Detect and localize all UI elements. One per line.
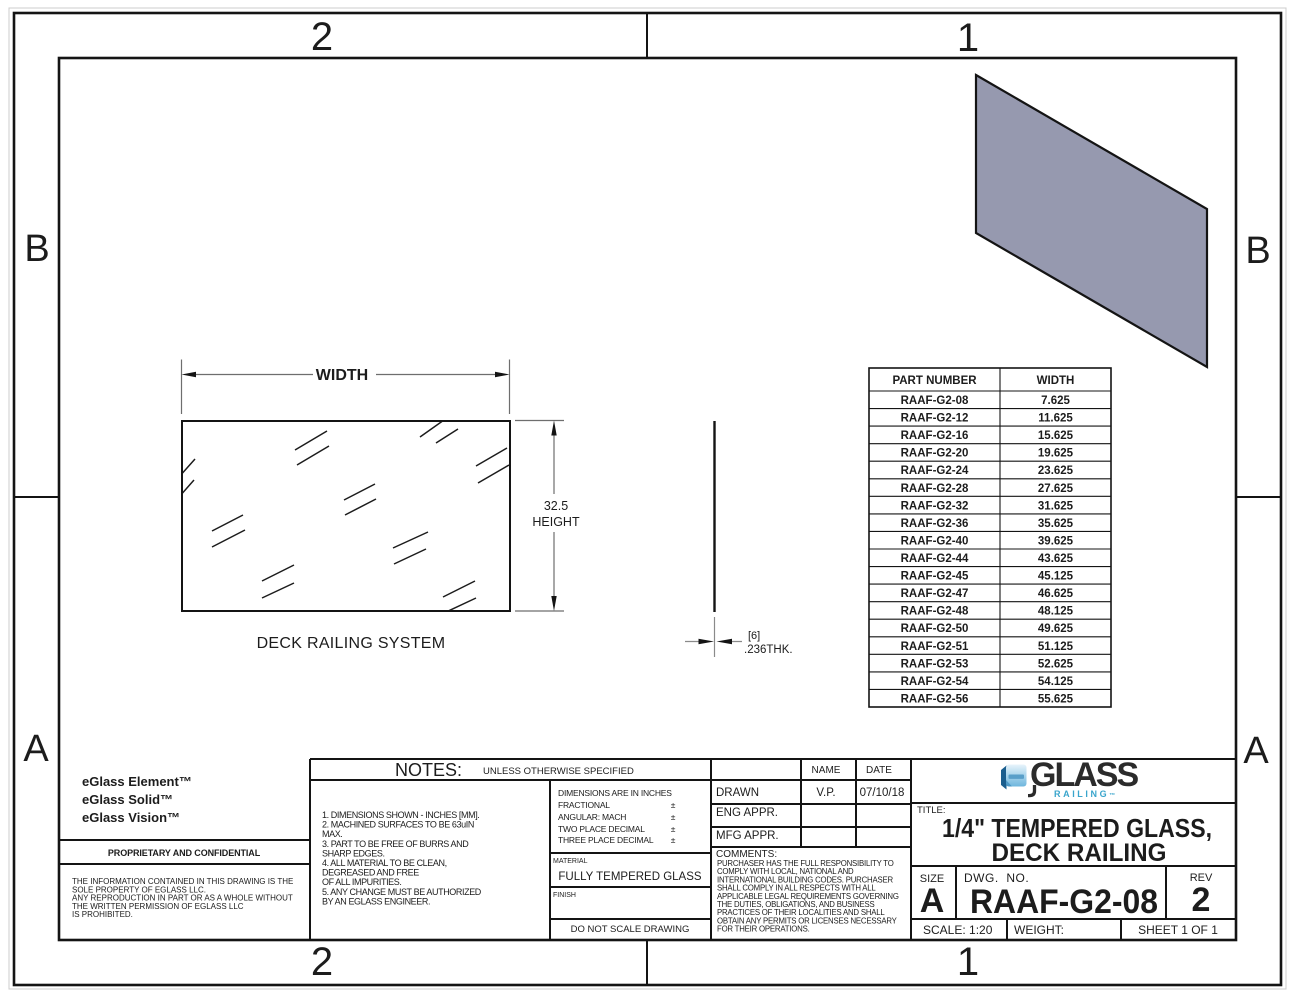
svg-text:SHEET 1 OF 1: SHEET 1 OF 1 — [1138, 923, 1218, 937]
svg-text:1: 1 — [957, 940, 979, 984]
svg-text:[6]: [6] — [748, 630, 760, 642]
svg-text:23.625: 23.625 — [1038, 465, 1074, 477]
svg-text:±: ± — [671, 824, 676, 834]
svg-text:RAAF-G2-40: RAAF-G2-40 — [901, 535, 969, 547]
svg-text:±: ± — [671, 812, 676, 822]
svg-text:PROPRIETARY AND CONFIDENTIAL: PROPRIETARY AND CONFIDENTIAL — [108, 848, 261, 858]
svg-text:TWO PLACE DECIMAL: TWO PLACE DECIMAL — [558, 824, 645, 834]
svg-text:A: A — [920, 882, 945, 920]
svg-text:DATE: DATE — [866, 765, 892, 776]
svg-text:RAAF-G2-54: RAAF-G2-54 — [901, 676, 969, 688]
svg-text:7.625: 7.625 — [1041, 395, 1070, 407]
svg-text:UNLESS OTHERWISE SPECIFIED: UNLESS OTHERWISE SPECIFIED — [483, 766, 634, 777]
svg-text:DECK RAILING: DECK RAILING — [992, 839, 1167, 867]
svg-text:2: 2 — [311, 940, 333, 984]
svg-text:RAAF-G2-24: RAAF-G2-24 — [901, 465, 969, 477]
svg-text:46.625: 46.625 — [1038, 588, 1074, 600]
svg-text:SHARP EDGES.: SHARP EDGES. — [322, 848, 385, 858]
svg-text:NAME: NAME — [812, 765, 841, 776]
svg-text:27.625: 27.625 — [1038, 483, 1074, 495]
svg-text:FRACTIONAL: FRACTIONAL — [558, 800, 610, 810]
svg-text:35.625: 35.625 — [1038, 518, 1074, 530]
svg-text:RAAF-G2-44: RAAF-G2-44 — [901, 553, 969, 565]
svg-text:FULLY TEMPERED GLASS: FULLY TEMPERED GLASS — [558, 871, 701, 883]
svg-text:07/10/18: 07/10/18 — [860, 787, 905, 799]
svg-text:WIDTH: WIDTH — [1037, 375, 1075, 387]
svg-text:3. PART TO BE FREE OF BURRS AN: 3. PART TO BE FREE OF BURRS AND — [322, 839, 469, 849]
svg-text:OF ALL IMPURITIES.: OF ALL IMPURITIES. — [322, 877, 402, 887]
svg-text:RAAF-G2-36: RAAF-G2-36 — [901, 518, 969, 530]
svg-text:NOTES:: NOTES: — [395, 760, 462, 780]
svg-text:RAAF-G2-56: RAAF-G2-56 — [901, 693, 969, 705]
svg-text:B: B — [1245, 230, 1270, 272]
svg-text:RAAF-G2-53: RAAF-G2-53 — [901, 658, 969, 670]
svg-text:51.125: 51.125 — [1038, 641, 1074, 653]
svg-text:48.125: 48.125 — [1038, 606, 1074, 618]
svg-text:B: B — [24, 228, 49, 270]
svg-text:eGlass Vision™: eGlass Vision™ — [82, 810, 180, 825]
svg-text:RAAF-G2-08: RAAF-G2-08 — [970, 883, 1158, 921]
svg-text:FINISH: FINISH — [553, 892, 576, 899]
svg-text:DRAWN: DRAWN — [716, 787, 759, 799]
svg-text:eGlass Element™: eGlass Element™ — [82, 774, 192, 789]
svg-text:±: ± — [671, 800, 676, 810]
svg-text:RAAF-G2-20: RAAF-G2-20 — [901, 448, 969, 460]
svg-text:1. DIMENSIONS SHOWN - INCHES [: 1. DIMENSIONS SHOWN - INCHES [MM]. — [322, 810, 479, 820]
svg-text:54.125: 54.125 — [1038, 676, 1074, 688]
svg-text:BY AN EGLASS ENGINEER.: BY AN EGLASS ENGINEER. — [322, 896, 430, 906]
svg-text:11.625: 11.625 — [1038, 413, 1073, 425]
svg-text:2: 2 — [311, 15, 333, 59]
svg-text:RAAF-G2-50: RAAF-G2-50 — [901, 623, 969, 635]
svg-text:A: A — [1243, 730, 1269, 772]
svg-text:39.625: 39.625 — [1038, 535, 1074, 547]
svg-text:15.625: 15.625 — [1038, 430, 1074, 442]
svg-text:RAAF-G2-47: RAAF-G2-47 — [901, 588, 969, 600]
svg-text:52.625: 52.625 — [1038, 658, 1074, 670]
svg-text:45.125: 45.125 — [1038, 571, 1074, 583]
svg-text:RAAF-G2-45: RAAF-G2-45 — [901, 571, 969, 583]
svg-text:eGlass Solid™: eGlass Solid™ — [82, 792, 173, 807]
svg-text:5. ANY CHANGE MUST BE AUTHORIZ: 5. ANY CHANGE MUST BE AUTHORIZED — [322, 887, 482, 897]
svg-text:ENG APPR.: ENG APPR. — [716, 807, 778, 819]
svg-text:MAX.: MAX. — [322, 829, 342, 839]
svg-text:4. ALL MATERIAL TO BE CLEAN,: 4. ALL MATERIAL TO BE CLEAN, — [322, 858, 447, 868]
svg-text:43.625: 43.625 — [1038, 553, 1074, 565]
svg-text:FOR THEIR OPERATIONS.: FOR THEIR OPERATIONS. — [717, 925, 810, 934]
svg-text:HEIGHT: HEIGHT — [532, 515, 580, 529]
svg-text:WEIGHT:: WEIGHT: — [1014, 923, 1064, 937]
svg-text:±: ± — [671, 835, 676, 845]
svg-text:V.P.: V.P. — [816, 787, 835, 799]
svg-text:RAAF-G2-16: RAAF-G2-16 — [901, 430, 969, 442]
svg-text:PART NUMBER: PART NUMBER — [892, 375, 977, 387]
svg-text:MATERIAL: MATERIAL — [553, 858, 588, 865]
svg-text:RAILING™: RAILING™ — [1054, 789, 1115, 799]
svg-text:RAAF-G2-12: RAAF-G2-12 — [901, 413, 969, 425]
svg-text:55.625: 55.625 — [1038, 693, 1074, 705]
svg-text:IS PROHIBITED.: IS PROHIBITED. — [72, 910, 133, 919]
svg-text:MFG APPR.: MFG APPR. — [716, 830, 779, 842]
svg-text:DO NOT SCALE DRAWING: DO NOT SCALE DRAWING — [571, 924, 690, 935]
svg-text:RAAF-G2-51: RAAF-G2-51 — [901, 641, 969, 653]
svg-text:19.625: 19.625 — [1038, 448, 1074, 460]
svg-text:RAAF-G2-08: RAAF-G2-08 — [901, 395, 969, 407]
svg-text:32.5: 32.5 — [544, 499, 568, 513]
svg-text:.236THK.: .236THK. — [744, 644, 793, 656]
svg-text:RAAF-G2-28: RAAF-G2-28 — [901, 483, 969, 495]
svg-text:RAAF-G2-32: RAAF-G2-32 — [901, 500, 969, 512]
svg-text:2. MACHINED SURFACES TO BE 63u: 2. MACHINED SURFACES TO BE 63uIN — [322, 820, 474, 830]
svg-text:WIDTH: WIDTH — [316, 367, 368, 384]
svg-text:A: A — [23, 728, 49, 770]
svg-text:SCALE: 1:20: SCALE: 1:20 — [923, 923, 993, 937]
svg-text:DEGREASED AND FREE: DEGREASED AND FREE — [322, 868, 419, 878]
svg-text:DECK RAILING SYSTEM: DECK RAILING SYSTEM — [257, 635, 446, 652]
svg-text:DIMENSIONS ARE IN INCHES: DIMENSIONS ARE IN INCHES — [558, 788, 672, 798]
svg-text:RAAF-G2-48: RAAF-G2-48 — [901, 606, 969, 618]
svg-text:ANGULAR: MACH: ANGULAR: MACH — [558, 812, 626, 822]
svg-text:49.625: 49.625 — [1038, 623, 1074, 635]
svg-text:THREE PLACE DECIMAL: THREE PLACE DECIMAL — [558, 835, 654, 845]
svg-text:1: 1 — [957, 16, 979, 60]
svg-text:2: 2 — [1192, 881, 1211, 919]
svg-text:31.625: 31.625 — [1038, 500, 1074, 512]
